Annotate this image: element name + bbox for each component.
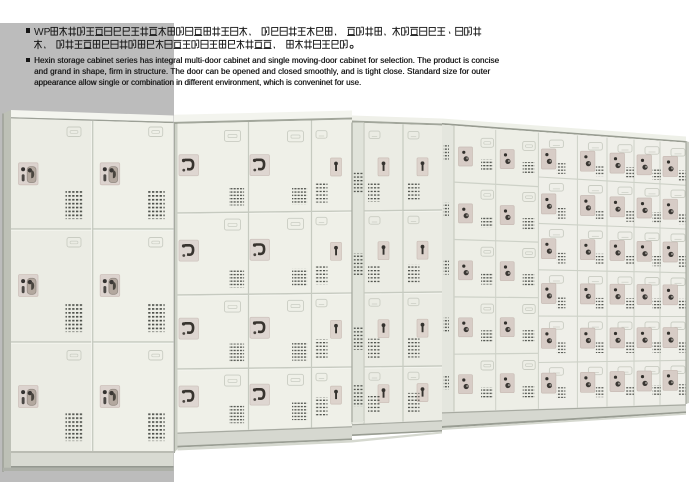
- svg-text:WP: WP: [34, 27, 51, 38]
